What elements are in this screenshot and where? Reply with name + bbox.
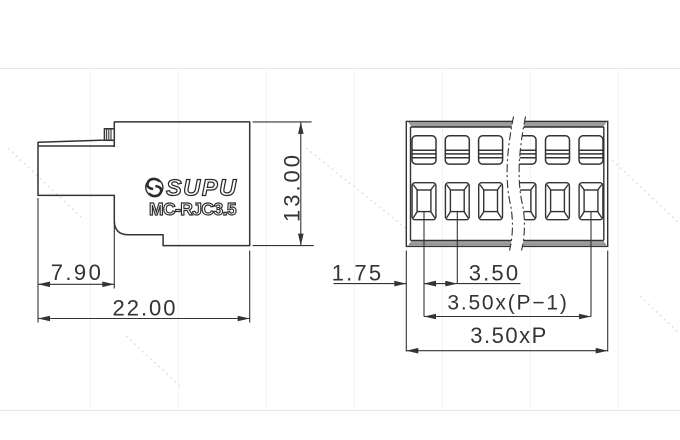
svg-text:SUPU: SUPU xyxy=(166,175,238,201)
svg-text:7.90: 7.90 xyxy=(51,260,103,285)
svg-text:MC-RJC3.5: MC-RJC3.5 xyxy=(149,199,237,219)
svg-text:3.50x(P−1): 3.50x(P−1) xyxy=(447,292,568,315)
svg-text:1.75: 1.75 xyxy=(332,261,384,286)
svg-text:13.00: 13.00 xyxy=(280,152,305,222)
svg-text:3.50xP: 3.50xP xyxy=(470,323,548,348)
svg-text:3.50: 3.50 xyxy=(469,261,521,286)
svg-text:22.00: 22.00 xyxy=(112,296,177,321)
